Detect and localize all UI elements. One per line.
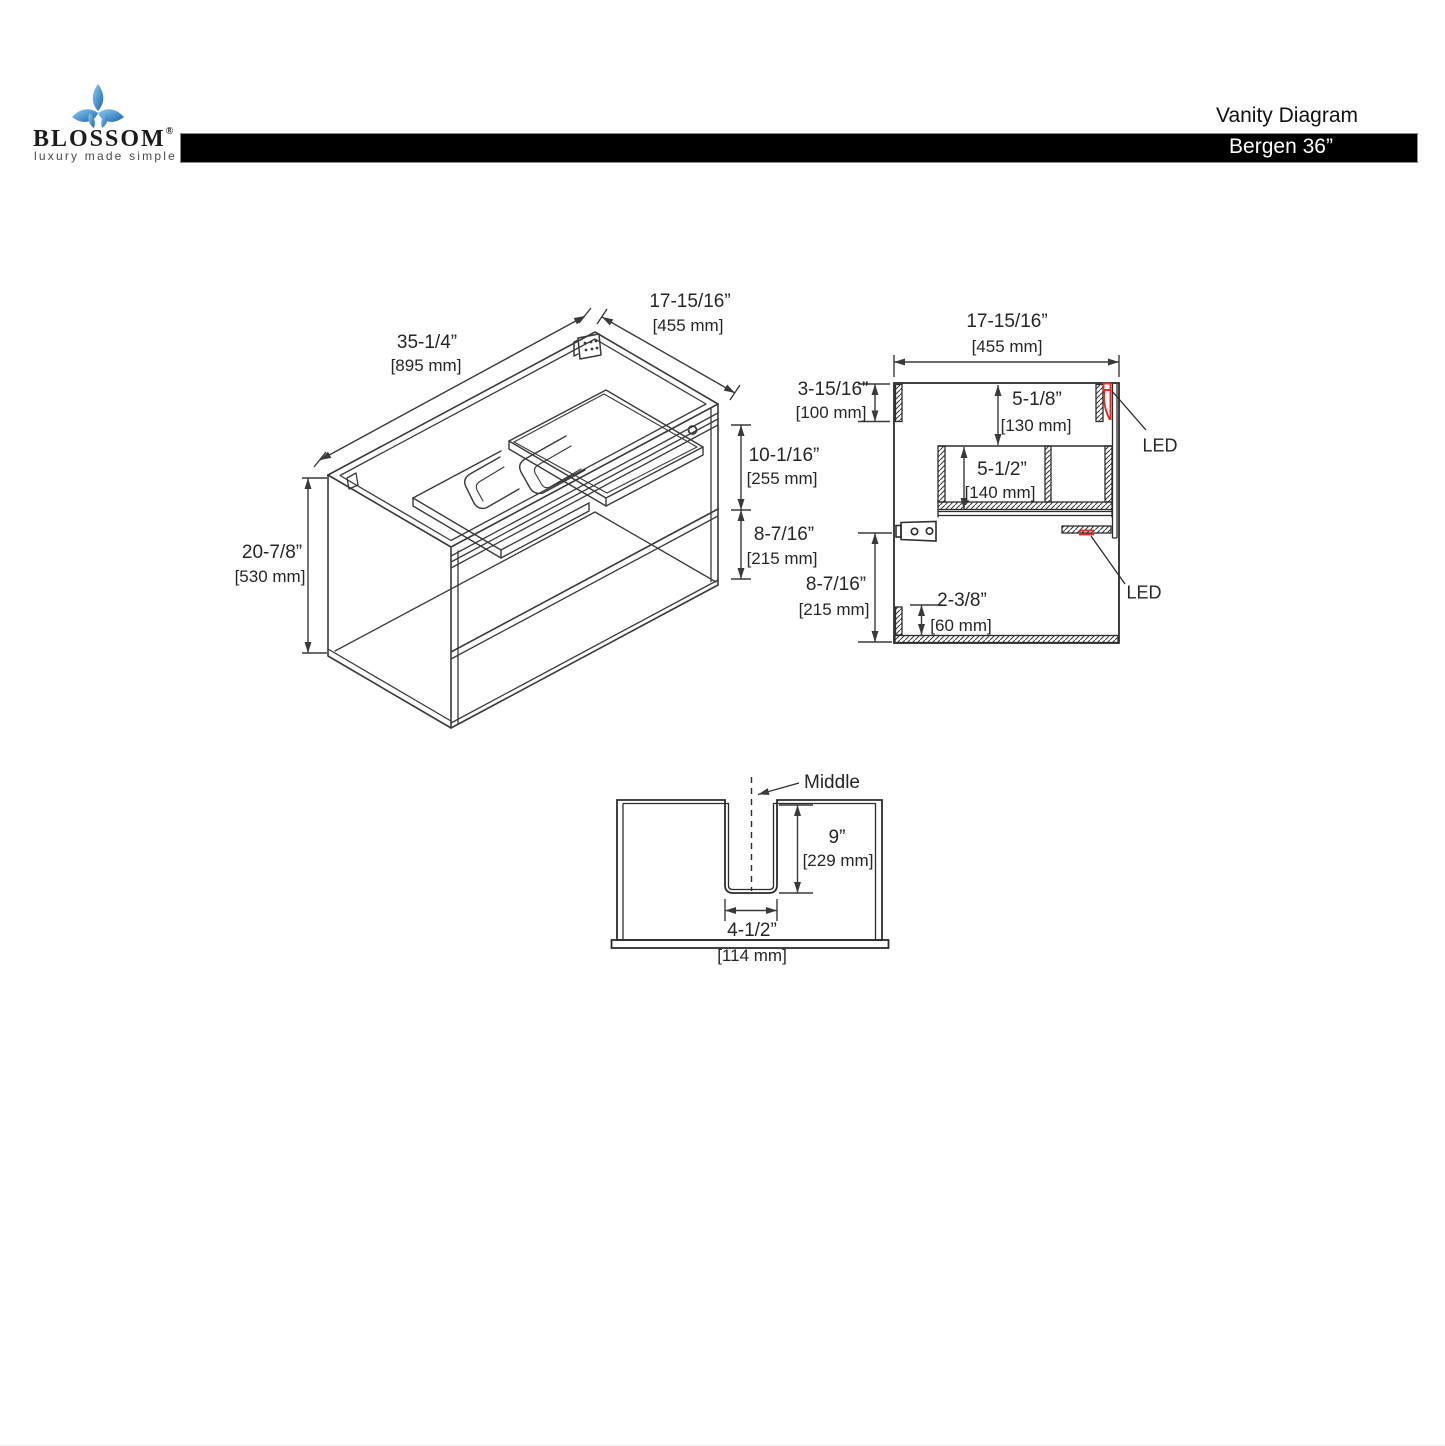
- middle-label: Middle: [804, 772, 860, 794]
- led-leader-bottom: [1091, 536, 1125, 584]
- led-marker-top: [1104, 384, 1111, 420]
- side-bottom-gap-inches: 8-7/16”: [806, 574, 866, 596]
- iso-drawer-zone-mm: [255 mm]: [747, 469, 818, 489]
- notch-depth-mm: [229 mm]: [803, 851, 874, 871]
- side-drawer-top-inches: 5-1/8”: [1012, 389, 1062, 411]
- back-panel-dimensions: [725, 805, 813, 921]
- iso-width-mm: [895 mm]: [391, 356, 462, 376]
- vanity-diagram-page: BLOSSOM® luxury made simple Vanity Diagr…: [0, 0, 1445, 1446]
- iso-width-inches: 35-1/4”: [397, 332, 457, 354]
- side-drawer-inner-mm: [140 mm]: [965, 483, 1036, 503]
- side-depth-inches: 17-15/16”: [966, 311, 1047, 333]
- iso-shelf-zone-mm: [215 mm]: [747, 549, 818, 569]
- iso-height-inches: 20-7/8”: [242, 542, 302, 564]
- side-drawer-inner-inches: 5-1/2”: [977, 459, 1027, 481]
- iso-depth-inches: 17-15/16”: [649, 291, 730, 313]
- iso-drawer-zone-inches: 10-1/16”: [749, 445, 820, 467]
- led-label-top: LED: [1142, 436, 1177, 457]
- diagram-canvas: [0, 0, 1445, 1445]
- led-label-bottom: LED: [1126, 583, 1161, 604]
- iso-shelf-zone-inches: 8-7/16”: [754, 524, 814, 546]
- notch-width-mm: [114 mm]: [717, 946, 787, 966]
- notch-width-inches: 4-1/2”: [727, 920, 777, 942]
- side-drawer-top-mm: [130 mm]: [1001, 416, 1072, 436]
- middle-leader: [758, 783, 799, 795]
- wall-bracket-icon: [574, 334, 601, 359]
- side-top-gap-inches: 3-15/16”: [798, 379, 869, 401]
- isometric-view: [328, 332, 718, 728]
- side-depth-mm: [455 mm]: [972, 337, 1043, 357]
- iso-depth-mm: [455 mm]: [653, 316, 724, 336]
- side-toe-kick-mm: [60 mm]: [930, 616, 991, 636]
- side-bottom-gap-mm: [215 mm]: [799, 600, 870, 620]
- side-top-gap-mm: [100 mm]: [796, 403, 867, 423]
- side-toe-kick-inches: 2-3/8”: [937, 590, 987, 612]
- notch-depth-inches: 9”: [829, 827, 846, 849]
- mounting-bracket-icon: [896, 522, 936, 542]
- iso-height-mm: [530 mm]: [235, 567, 306, 587]
